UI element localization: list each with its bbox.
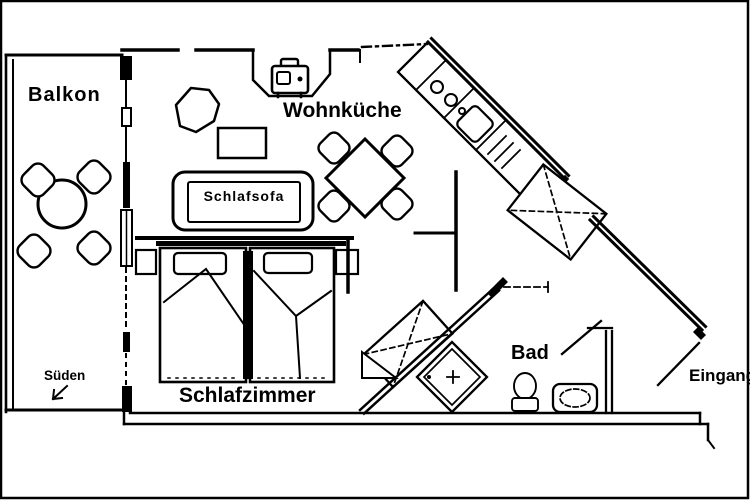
schlafsofa-label: Schlafsofa xyxy=(204,188,285,204)
entrance-wall xyxy=(590,217,706,331)
nightstand-icon xyxy=(136,250,156,274)
balkon-label: Balkon xyxy=(28,84,101,106)
pillow-icon xyxy=(264,253,312,273)
southwest-arrow-icon xyxy=(53,386,67,399)
sofa-icon: Schlafsofa xyxy=(173,172,313,230)
sueden-label: Süden xyxy=(44,368,85,383)
washbasin-icon xyxy=(553,384,597,412)
dining-set xyxy=(316,130,416,225)
room-wohnkueche: Wohnküche Schlafsofa xyxy=(173,50,415,230)
armchair-icon xyxy=(176,88,219,132)
balcony-chair-icon xyxy=(74,228,114,268)
eingang-label: Eingang xyxy=(689,366,750,385)
bad-label: Bad xyxy=(511,342,549,364)
door-leaf xyxy=(562,321,601,354)
tv-icon xyxy=(272,59,308,97)
double-bed-icon xyxy=(160,248,334,382)
pillow-icon xyxy=(174,253,226,274)
toilet-icon xyxy=(512,373,538,411)
balcony-chair-icon xyxy=(14,231,54,271)
balcony-window-wall xyxy=(120,56,132,412)
coffee-table-icon xyxy=(218,128,266,158)
floor-plan: Balkon Süden Wohnküche xyxy=(0,0,750,500)
appliance-icon xyxy=(488,136,520,168)
bottom-wall xyxy=(124,410,714,448)
wardrobe-icon xyxy=(508,165,607,260)
schlafzimmer-label: Schlafzimmer xyxy=(179,384,316,407)
room-balkon: Balkon Süden xyxy=(6,55,124,412)
wohnkueche-label: Wohnküche xyxy=(283,99,402,122)
top-wall xyxy=(122,44,427,62)
room-schlafzimmer: Schlafzimmer xyxy=(136,248,358,407)
entrance: Eingang xyxy=(590,217,750,386)
stove-burners-icon xyxy=(431,81,457,106)
